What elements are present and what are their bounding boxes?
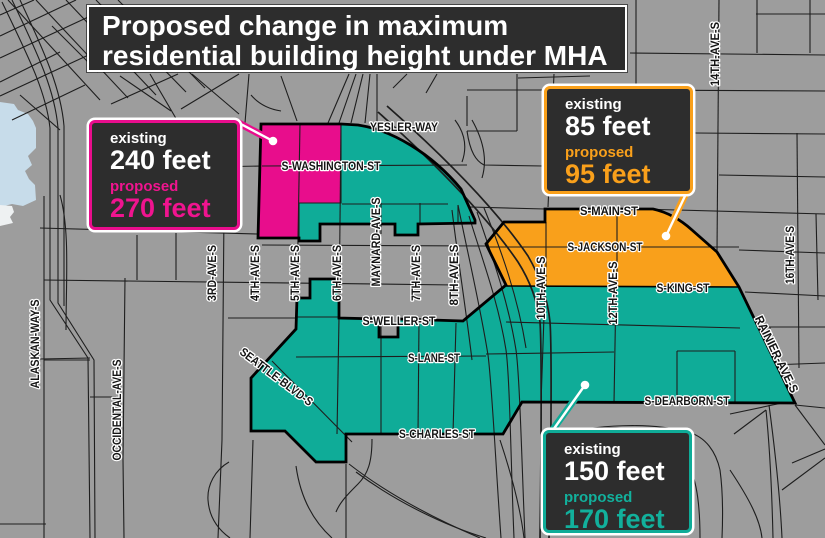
svg-text:S-KING-ST: S-KING-ST <box>657 281 711 295</box>
svg-text:6TH-AVE-S: 6TH-AVE-S <box>330 245 344 301</box>
svg-text:S-LANE-ST: S-LANE-ST <box>408 351 461 365</box>
svg-text:S-WELLER-ST: S-WELLER-ST <box>363 314 437 328</box>
svg-text:7TH-AVE-S: 7TH-AVE-S <box>409 245 423 301</box>
svg-text:OCCIDENTAL-AVE-S: OCCIDENTAL-AVE-S <box>110 360 124 461</box>
svg-text:S-WASHINGTON-ST: S-WASHINGTON-ST <box>282 159 382 173</box>
svg-text:S-JACKSON-ST: S-JACKSON-ST <box>568 240 644 254</box>
svg-text:3RD-AVE-S: 3RD-AVE-S <box>205 245 219 301</box>
svg-text:12TH-AVE-S: 12TH-AVE-S <box>606 262 620 325</box>
svg-text:S-DEARBORN-ST: S-DEARBORN-ST <box>645 394 731 408</box>
svg-text:S-MAIN-ST: S-MAIN-ST <box>580 204 639 218</box>
svg-text:16TH-AVE-S: 16TH-AVE-S <box>783 226 797 284</box>
svg-text:S-CHARLES-ST: S-CHARLES-ST <box>399 427 476 441</box>
svg-text:5TH-AVE-S: 5TH-AVE-S <box>288 245 302 301</box>
svg-text:4TH-AVE-S: 4TH-AVE-S <box>248 245 262 301</box>
svg-text:YESLER-WAY: YESLER-WAY <box>370 120 438 134</box>
svg-text:14TH-AVE-S: 14TH-AVE-S <box>708 22 722 86</box>
svg-text:10TH-AVE-S: 10TH-AVE-S <box>534 257 548 320</box>
svg-text:8TH-AVE-S: 8TH-AVE-S <box>447 245 461 306</box>
svg-text:ALASKAN-WAY-S: ALASKAN-WAY-S <box>28 300 42 389</box>
svg-text:MAYNARD-AVE-S: MAYNARD-AVE-S <box>369 198 383 287</box>
